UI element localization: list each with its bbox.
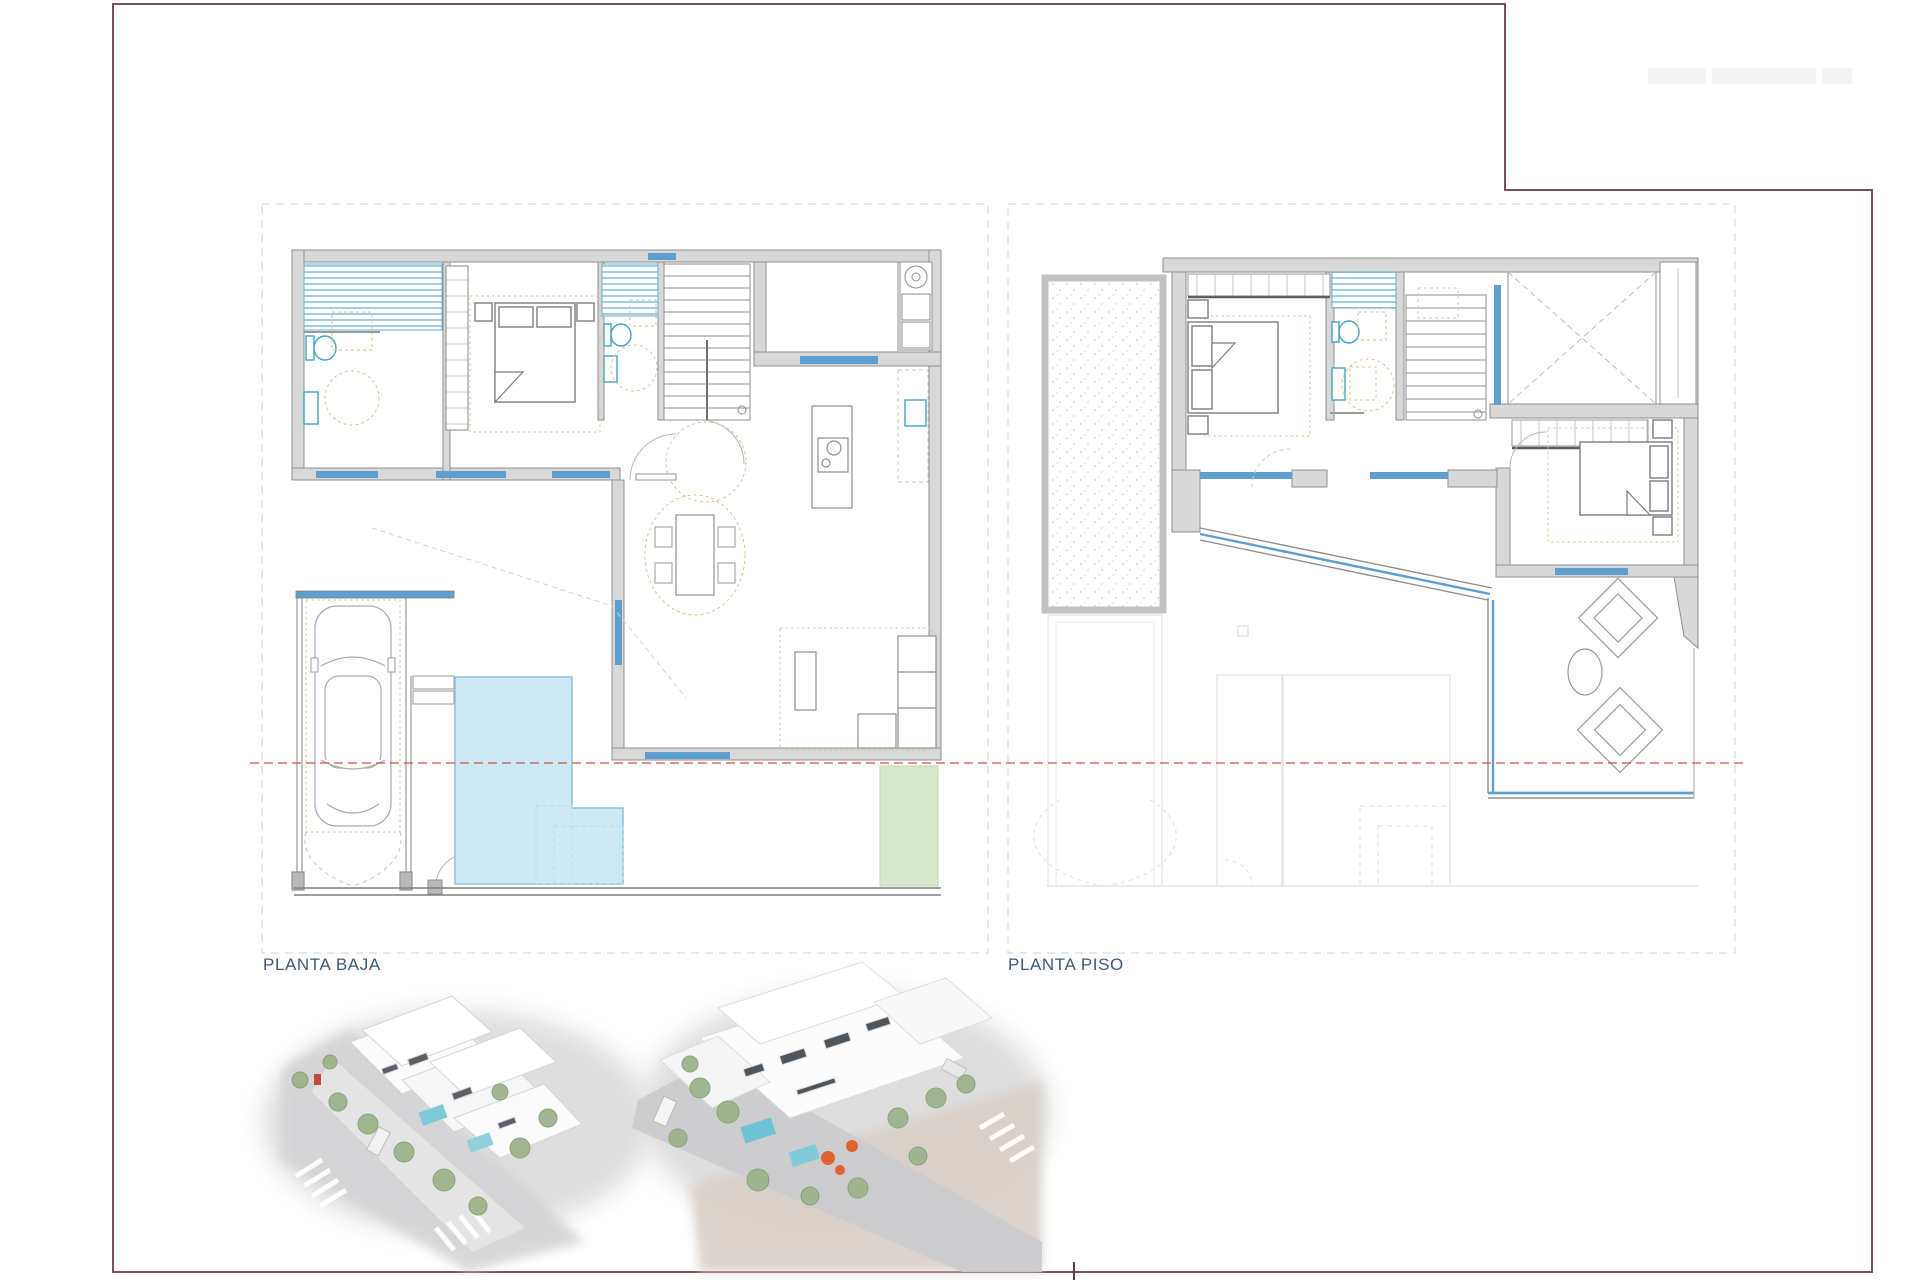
- faint-watermark: [1648, 68, 1860, 84]
- sink-1: [304, 392, 318, 424]
- toilet-2: [604, 324, 631, 346]
- render-aerial-close: [632, 962, 1050, 1272]
- pool: [455, 677, 623, 884]
- bedroom-2: [1510, 420, 1678, 542]
- hall-doors: [630, 420, 746, 502]
- terrace-furniture: [1568, 578, 1662, 772]
- dining-set: [645, 495, 745, 615]
- bed-1: [1188, 300, 1278, 434]
- guide-line: [372, 528, 686, 698]
- kitchen-island: [812, 406, 852, 508]
- ground-floor-plan: [292, 250, 941, 895]
- sofa: [858, 636, 936, 748]
- closet-upper: [1660, 262, 1696, 404]
- terrace-table: [1568, 649, 1602, 695]
- plan-sheet: PLANTA BAJA PLANTA PISO: [0, 0, 1920, 1280]
- garage-window: [296, 591, 454, 598]
- living-room: [780, 628, 936, 750]
- upper-floor-plan: [1034, 258, 1698, 886]
- stairs-upper: [1406, 288, 1486, 420]
- bedroom-1: [1188, 274, 1330, 487]
- rug-circle-1: [325, 371, 379, 425]
- sheet-drawing: [0, 0, 1920, 1280]
- bathroom-upper: [1330, 272, 1396, 413]
- shower-2: [602, 264, 658, 316]
- garage: [292, 591, 454, 890]
- bathroom-2: [602, 264, 658, 391]
- toilet-upper: [1332, 321, 1359, 343]
- upper-floor-label: PLANTA PISO: [1008, 955, 1124, 975]
- washer-column: [900, 262, 932, 350]
- kitchen-sink: [905, 400, 926, 426]
- sink-2: [604, 356, 617, 382]
- laundry-patio: [766, 262, 932, 352]
- ground-floor-label: PLANTA BAJA: [263, 955, 381, 975]
- coffee-table: [795, 652, 816, 710]
- render-aerial-far: [263, 996, 653, 1272]
- sink-upper: [1332, 368, 1345, 400]
- wardrobe-1: [1188, 274, 1330, 296]
- lawn: [880, 766, 938, 886]
- car: [311, 606, 395, 826]
- void-room: [1508, 272, 1656, 404]
- master-bedroom: [470, 296, 600, 432]
- wardrobe-ground: [446, 266, 468, 430]
- lounge-chair-1: [1578, 578, 1657, 657]
- bed-ground: [475, 303, 594, 402]
- roof-terrace-stipple: [1045, 278, 1163, 610]
- bathroom-1: [304, 264, 442, 425]
- shower-1: [304, 264, 442, 330]
- dining-table: [676, 515, 714, 595]
- terrace-wall: [294, 888, 941, 895]
- lounge-chair-2: [1578, 688, 1663, 773]
- stairs-ground: [664, 264, 750, 420]
- shower-upper: [1332, 272, 1396, 308]
